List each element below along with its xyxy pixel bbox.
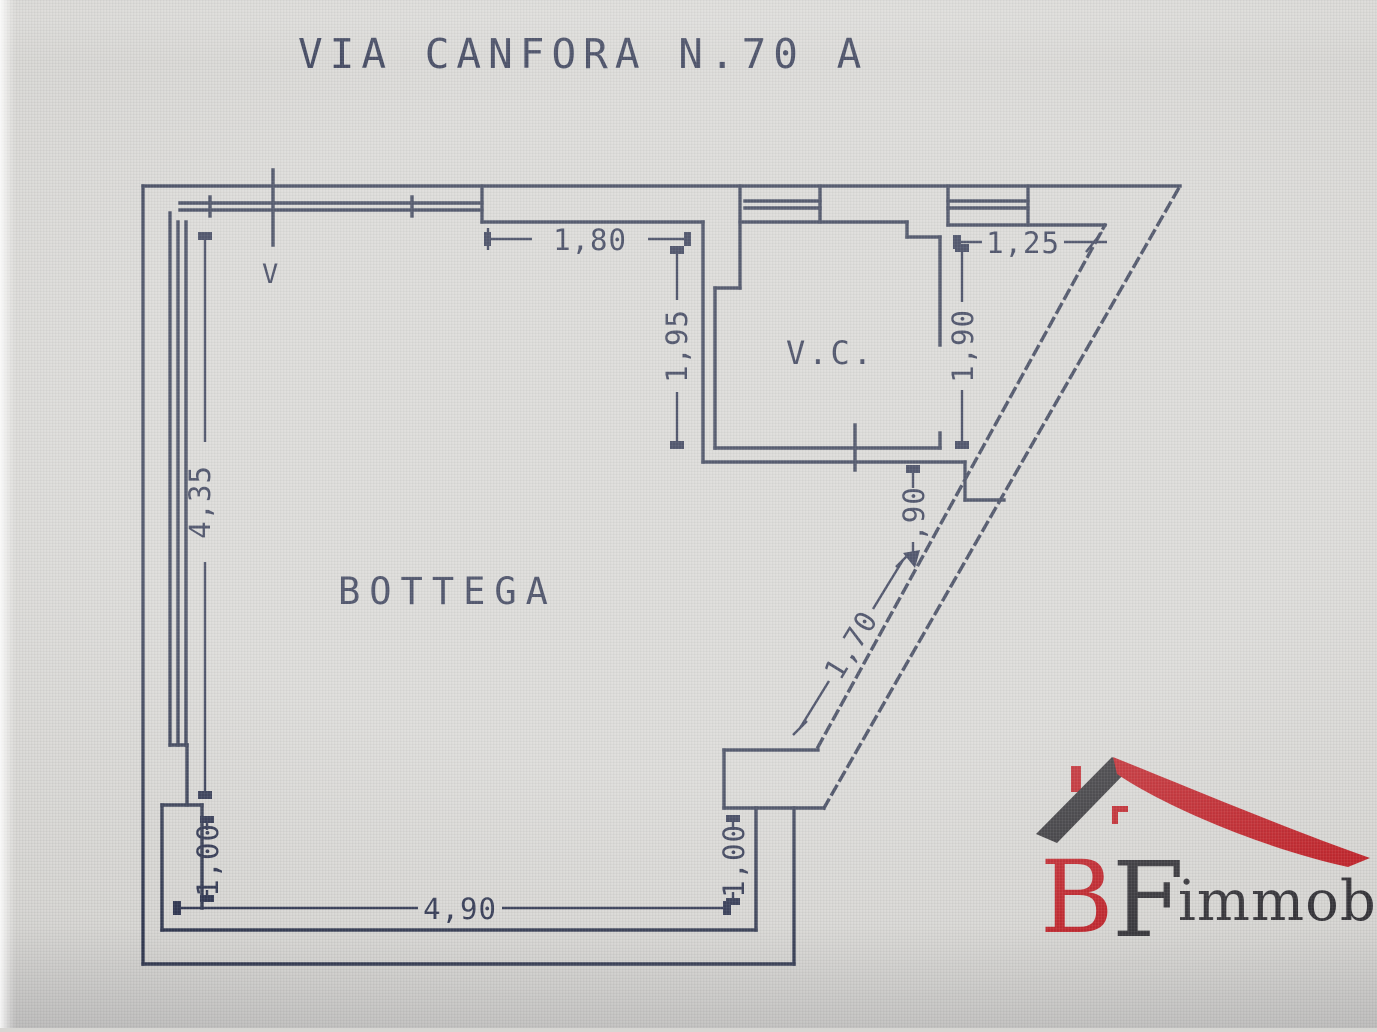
dimension-left-wall: 4,35 <box>183 232 217 799</box>
logo-wordmark: immobiliare <box>1178 869 1377 934</box>
plan-title: VIA CANFORA N.70 A <box>298 30 868 78</box>
svg-text:1,00: 1,00 <box>191 823 225 897</box>
logo-letter-f: F <box>1112 839 1184 961</box>
svg-text:1,80: 1,80 <box>553 223 627 257</box>
svg-text:,90: ,90 <box>897 486 931 541</box>
svg-text:4,35: 4,35 <box>183 465 217 539</box>
logo-window-mark <box>1112 806 1128 824</box>
dimension-bottom: 4,90 <box>173 892 731 926</box>
dimension-top-opening: 1,80 <box>484 223 691 257</box>
dimension-diagonal: 1,70 <box>793 553 910 735</box>
logo-chimney <box>1071 766 1081 792</box>
room-label-vc: V.C. <box>786 334 875 372</box>
dimension-recess-left: 1,00 <box>191 816 225 902</box>
dimension-vc-left: 1,95 <box>660 246 694 449</box>
wall-diagonal-outer <box>824 186 1180 808</box>
walls <box>143 170 1180 964</box>
agency-logo: B F immobiliare <box>1036 757 1377 961</box>
svg-text:1,95: 1,95 <box>660 309 694 383</box>
svg-text:1,00: 1,00 <box>717 824 751 898</box>
logo-letter-b: B <box>1040 839 1114 956</box>
wall-diagonal-inner <box>818 225 1105 747</box>
svg-text:1,90: 1,90 <box>946 309 980 383</box>
floor-plan-photo: VIA CANFORA N.70 A <box>0 0 1377 1028</box>
logo-roof-left <box>1036 757 1129 843</box>
svg-text:4,90: 4,90 <box>423 892 497 926</box>
dimension-recess-mid: 1,00 <box>717 815 751 905</box>
svg-text:1,25: 1,25 <box>986 226 1060 260</box>
dimension-vc-right: 1,90 <box>946 244 980 449</box>
room-label-bottega: BOTTEGA <box>338 570 557 613</box>
floor-plan-drawing: VIA CANFORA N.70 A <box>0 0 1377 1028</box>
window-marker-label: V <box>262 259 278 290</box>
dimensions: 1,80 1,25 1,95 1,90 <box>173 223 1107 926</box>
dimension-top-right: 1,25 <box>953 226 1107 260</box>
